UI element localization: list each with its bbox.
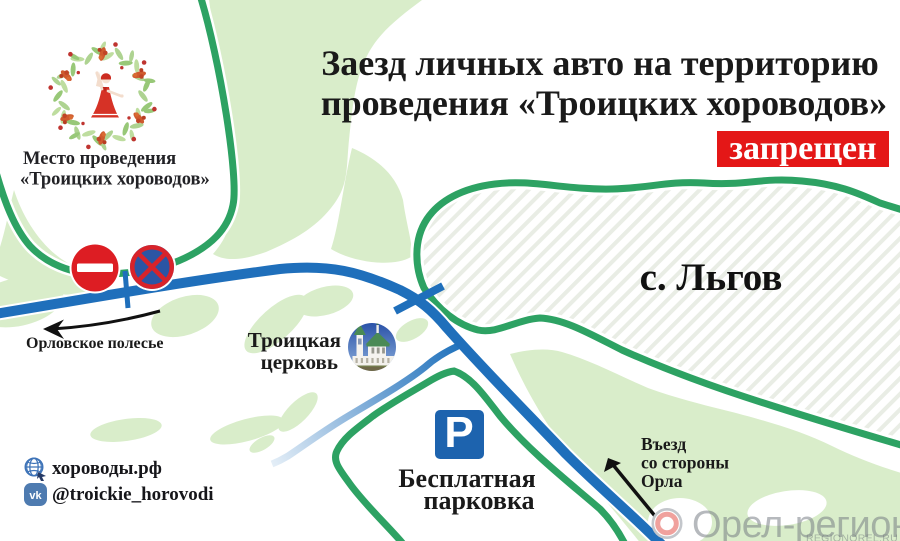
svg-text:Орловское полесье: Орловское полесье (26, 335, 164, 352)
svg-text:Въезд: Въезд (641, 434, 686, 454)
svg-text:@troickie_horovodi: @troickie_horovodi (52, 484, 214, 505)
svg-text:запрещен: запрещен (729, 130, 876, 167)
svg-text:«Троицких хороводов»: «Троицких хороводов» (20, 170, 210, 190)
svg-text:проведения «Троицких хороводов: проведения «Троицких хороводов» (321, 83, 887, 123)
svg-text:P: P (444, 408, 473, 457)
svg-text:Орла: Орла (641, 471, 683, 491)
svg-text:с. Льгов: с. Льгов (640, 256, 783, 299)
svg-text:REGIONOREL.RU: REGIONOREL.RU (806, 533, 898, 541)
svg-text:Место проведения: Место проведения (23, 149, 176, 169)
svg-text:vk: vk (29, 490, 42, 502)
svg-text:церковь: церковь (261, 350, 338, 374)
svg-text:хороводы.рф: хороводы.рф (52, 458, 162, 479)
svg-text:Троицкая: Троицкая (248, 328, 341, 352)
svg-text:со стороны: со стороны (641, 453, 729, 473)
svg-text:Заезд личных авто на территори: Заезд личных авто на территорию (321, 43, 879, 83)
svg-text:парковка: парковка (423, 486, 534, 515)
